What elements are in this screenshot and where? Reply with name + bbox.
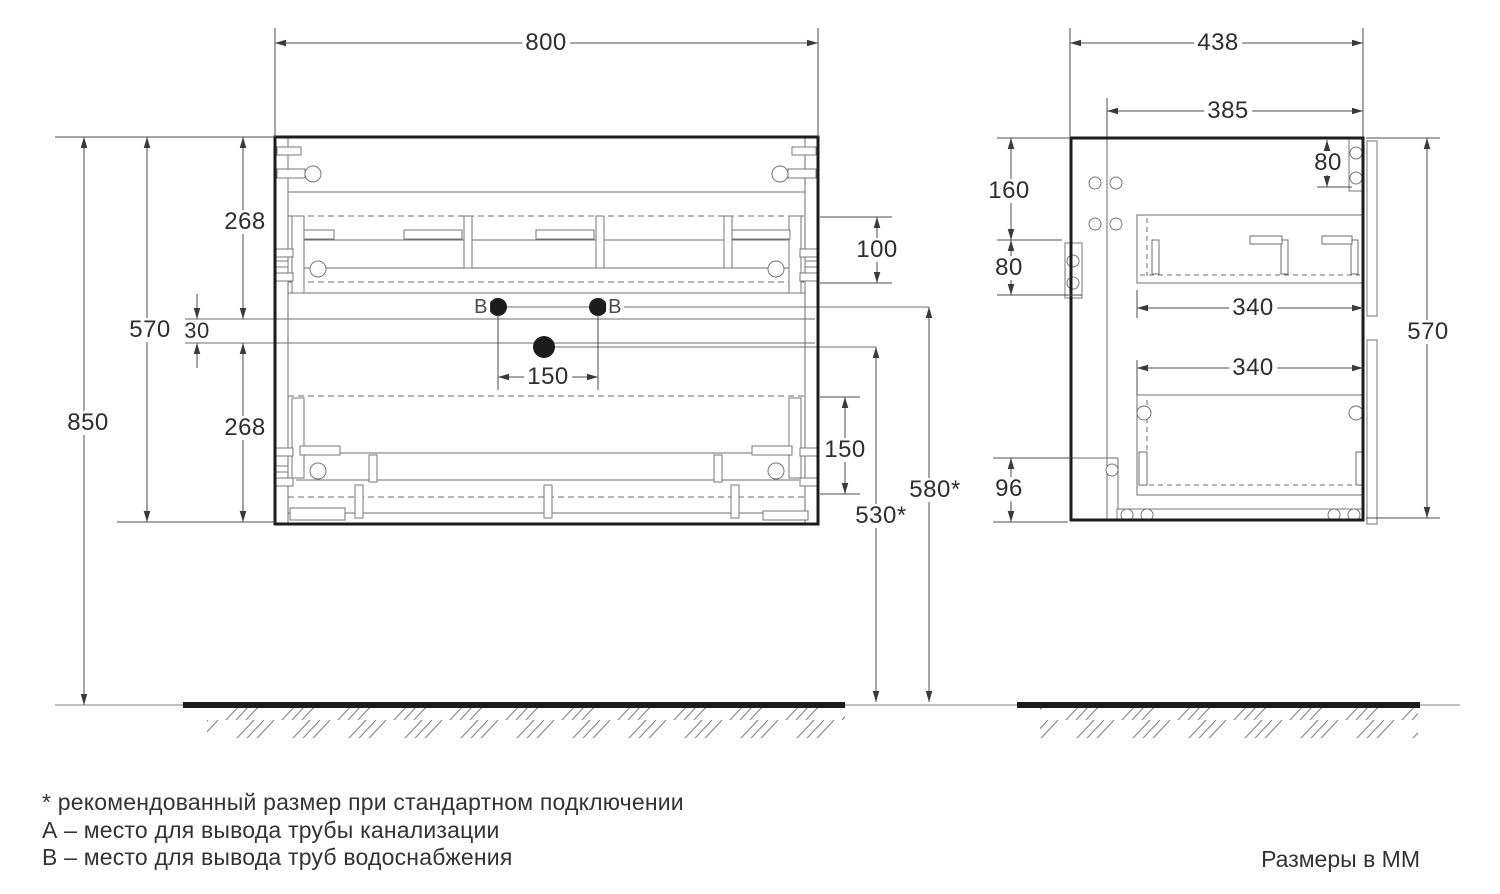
bottom-rail: [1117, 509, 1363, 520]
point-b-left-label: В: [472, 297, 490, 317]
bracket-height-dim: 80: [992, 256, 1026, 280]
floor-line: [55, 702, 1460, 738]
side-height-dim: 570: [1404, 320, 1452, 344]
front-width-dim: 800: [522, 31, 570, 55]
side-inner-depth-dim: 385: [1204, 99, 1252, 123]
side-bottom-drawer: [1137, 395, 1364, 495]
water-height-dim: 580*: [906, 478, 963, 502]
mounting-hardware: [277, 147, 816, 182]
top-offset-dim: 160: [985, 179, 1033, 203]
bottom-drawer-front-panel: [1367, 340, 1377, 524]
side-view-drawing: [1065, 138, 1377, 524]
front-view-drawing: [185, 137, 929, 524]
front-view-dimensions: [55, 28, 929, 705]
supply-spacing-dim: 150: [524, 365, 572, 389]
wall-bracket: [1065, 243, 1082, 298]
side-top-drawer: [1137, 215, 1363, 283]
lower-drawer-dim: 268: [221, 416, 269, 440]
bottom-offset-dim: 96: [992, 477, 1026, 501]
note-point-a: А – место для вывода трубы канализации: [42, 817, 500, 844]
cabinet-height-dim: 570: [126, 318, 174, 342]
lower-inner-dim: 150: [821, 438, 869, 462]
top-drawer-hardware: [275, 216, 818, 293]
floor-hatching-right: [1040, 708, 1418, 738]
drain-outlet-point: [533, 336, 555, 358]
mount-height-dim: 850: [64, 411, 112, 435]
hanger-height-dim: 80: [1311, 151, 1345, 175]
gap-dim: 30: [182, 320, 211, 342]
front-view-outline: [275, 137, 818, 524]
water-outlet-left-point: [489, 298, 507, 316]
upper-inner-dim: 100: [853, 238, 901, 262]
upper-drawer-dim: 268: [221, 210, 269, 234]
note-recommended-size: * рекомендованный размер при стандартном…: [42, 789, 684, 816]
floor-hatching-left: [207, 708, 845, 738]
side-hardware: [1065, 138, 1377, 524]
side-depth-dim: 438: [1194, 31, 1242, 55]
upper-drawer-depth-dim: 340: [1229, 296, 1277, 320]
technical-drawing: [0, 0, 1500, 894]
water-outlet-right-point: [589, 298, 607, 316]
lower-drawer-depth-dim: 340: [1229, 356, 1277, 380]
bottom-drawer-hardware: [275, 398, 818, 520]
drain-height-dim: 530*: [852, 504, 909, 528]
top-drawer-front-panel: [1367, 141, 1377, 316]
point-b-right-label: В: [606, 297, 624, 317]
blueprint-canvas: 800 268 570 30 850 268 150 100 150 580* …: [0, 0, 1500, 894]
note-point-b: В – место для вывода труб водоснабжения: [42, 844, 513, 871]
units-label: Размеры в ММ: [1240, 846, 1420, 873]
side-view-outline: [1071, 138, 1363, 520]
